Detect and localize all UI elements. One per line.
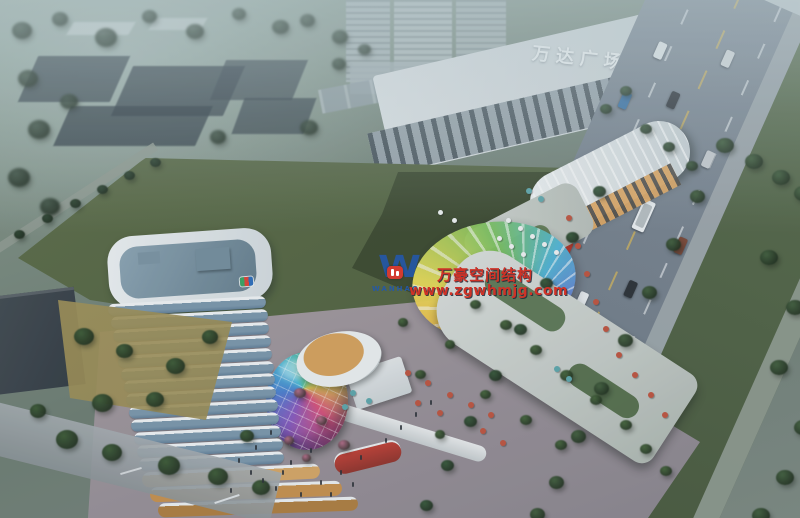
tree bbox=[618, 334, 633, 347]
umbrella bbox=[554, 250, 559, 255]
pedestrian bbox=[352, 482, 354, 487]
tree bbox=[302, 454, 311, 462]
tree bbox=[28, 120, 50, 139]
pedestrian bbox=[400, 425, 402, 430]
pedestrian bbox=[230, 488, 232, 493]
tree bbox=[358, 44, 371, 55]
tree bbox=[210, 130, 226, 144]
umbrella bbox=[530, 234, 535, 239]
tree bbox=[398, 318, 408, 327]
umbrella bbox=[350, 390, 356, 396]
tree bbox=[489, 370, 502, 381]
umbrella bbox=[593, 299, 599, 305]
tree bbox=[95, 28, 117, 47]
pedestrian bbox=[300, 492, 302, 497]
umbrella bbox=[480, 428, 486, 434]
umbrella bbox=[538, 196, 544, 202]
umbrella bbox=[554, 366, 560, 372]
rooftop-unit bbox=[195, 247, 230, 271]
tree bbox=[56, 430, 78, 449]
tree bbox=[593, 186, 606, 197]
tree bbox=[208, 468, 228, 485]
tower-roof-deck bbox=[118, 238, 257, 299]
umbrella bbox=[521, 252, 526, 257]
tree bbox=[514, 324, 527, 335]
tree bbox=[30, 404, 46, 418]
umbrella bbox=[509, 244, 514, 249]
pedestrian bbox=[310, 448, 312, 453]
pedestrian bbox=[290, 460, 292, 465]
tree bbox=[690, 190, 705, 203]
umbrella bbox=[438, 210, 443, 215]
tree bbox=[549, 476, 564, 489]
umbrella bbox=[542, 242, 547, 247]
tree bbox=[642, 286, 657, 299]
pedestrian bbox=[255, 445, 257, 450]
umbrella bbox=[342, 404, 348, 410]
pedestrian bbox=[330, 492, 332, 497]
tree bbox=[142, 10, 157, 23]
tree bbox=[158, 456, 180, 475]
umbrella bbox=[405, 370, 411, 376]
aerial-rendering-canvas: 万达广场 bbox=[0, 0, 800, 518]
tree bbox=[92, 394, 113, 412]
umbrella bbox=[566, 376, 572, 382]
tree bbox=[332, 30, 348, 44]
tower-logo bbox=[240, 276, 254, 286]
umbrella bbox=[497, 236, 502, 241]
umbrella bbox=[616, 352, 622, 358]
tree bbox=[441, 460, 454, 471]
umbrella bbox=[500, 440, 506, 446]
tree bbox=[74, 328, 94, 345]
pedestrian bbox=[340, 470, 342, 475]
umbrella bbox=[632, 372, 638, 378]
umbrella bbox=[526, 188, 532, 194]
umbrella bbox=[575, 243, 581, 249]
tree bbox=[52, 12, 68, 26]
tree bbox=[530, 508, 545, 518]
pedestrian bbox=[320, 480, 322, 485]
tree bbox=[571, 430, 586, 443]
tree bbox=[566, 232, 579, 243]
tree bbox=[420, 500, 433, 511]
umbrella bbox=[518, 226, 523, 231]
tree bbox=[666, 238, 681, 251]
tree bbox=[786, 300, 800, 315]
pedestrian bbox=[262, 478, 264, 483]
tree bbox=[332, 58, 346, 70]
umbrella bbox=[566, 215, 572, 221]
tree bbox=[540, 278, 553, 289]
umbrella bbox=[468, 402, 474, 408]
tree bbox=[232, 8, 246, 20]
umbrella bbox=[415, 400, 421, 406]
pedestrian bbox=[270, 430, 272, 435]
tree bbox=[300, 14, 315, 27]
umbrella bbox=[425, 380, 431, 386]
tree bbox=[240, 430, 254, 442]
tree bbox=[464, 416, 477, 427]
umbrella bbox=[603, 326, 609, 332]
tree bbox=[166, 358, 185, 374]
pedestrian bbox=[238, 458, 240, 463]
tree bbox=[18, 70, 38, 87]
umbrella bbox=[662, 412, 668, 418]
umbrella bbox=[447, 392, 453, 398]
pedestrian bbox=[282, 470, 284, 475]
tree bbox=[102, 444, 122, 461]
tree bbox=[284, 436, 294, 445]
umbrella bbox=[506, 218, 511, 223]
pedestrian bbox=[430, 400, 432, 405]
pedestrian bbox=[250, 470, 252, 475]
tree bbox=[40, 198, 60, 215]
pedestrian bbox=[275, 486, 277, 491]
tree bbox=[445, 340, 455, 349]
umbrella bbox=[584, 271, 590, 277]
tree bbox=[12, 22, 32, 39]
umbrella bbox=[452, 218, 457, 223]
pedestrian bbox=[385, 438, 387, 443]
umbrella bbox=[366, 398, 372, 404]
umbrella bbox=[648, 392, 654, 398]
podium-terrace-round bbox=[291, 324, 386, 395]
pedestrian bbox=[360, 455, 362, 460]
pedestrian bbox=[415, 412, 417, 417]
umbrella bbox=[488, 412, 494, 418]
tree bbox=[594, 382, 609, 395]
tree bbox=[752, 508, 770, 518]
tree bbox=[202, 330, 218, 344]
umbrella bbox=[437, 410, 443, 416]
tree bbox=[435, 430, 445, 439]
rooftop-unit bbox=[138, 251, 161, 265]
tree bbox=[8, 168, 30, 187]
